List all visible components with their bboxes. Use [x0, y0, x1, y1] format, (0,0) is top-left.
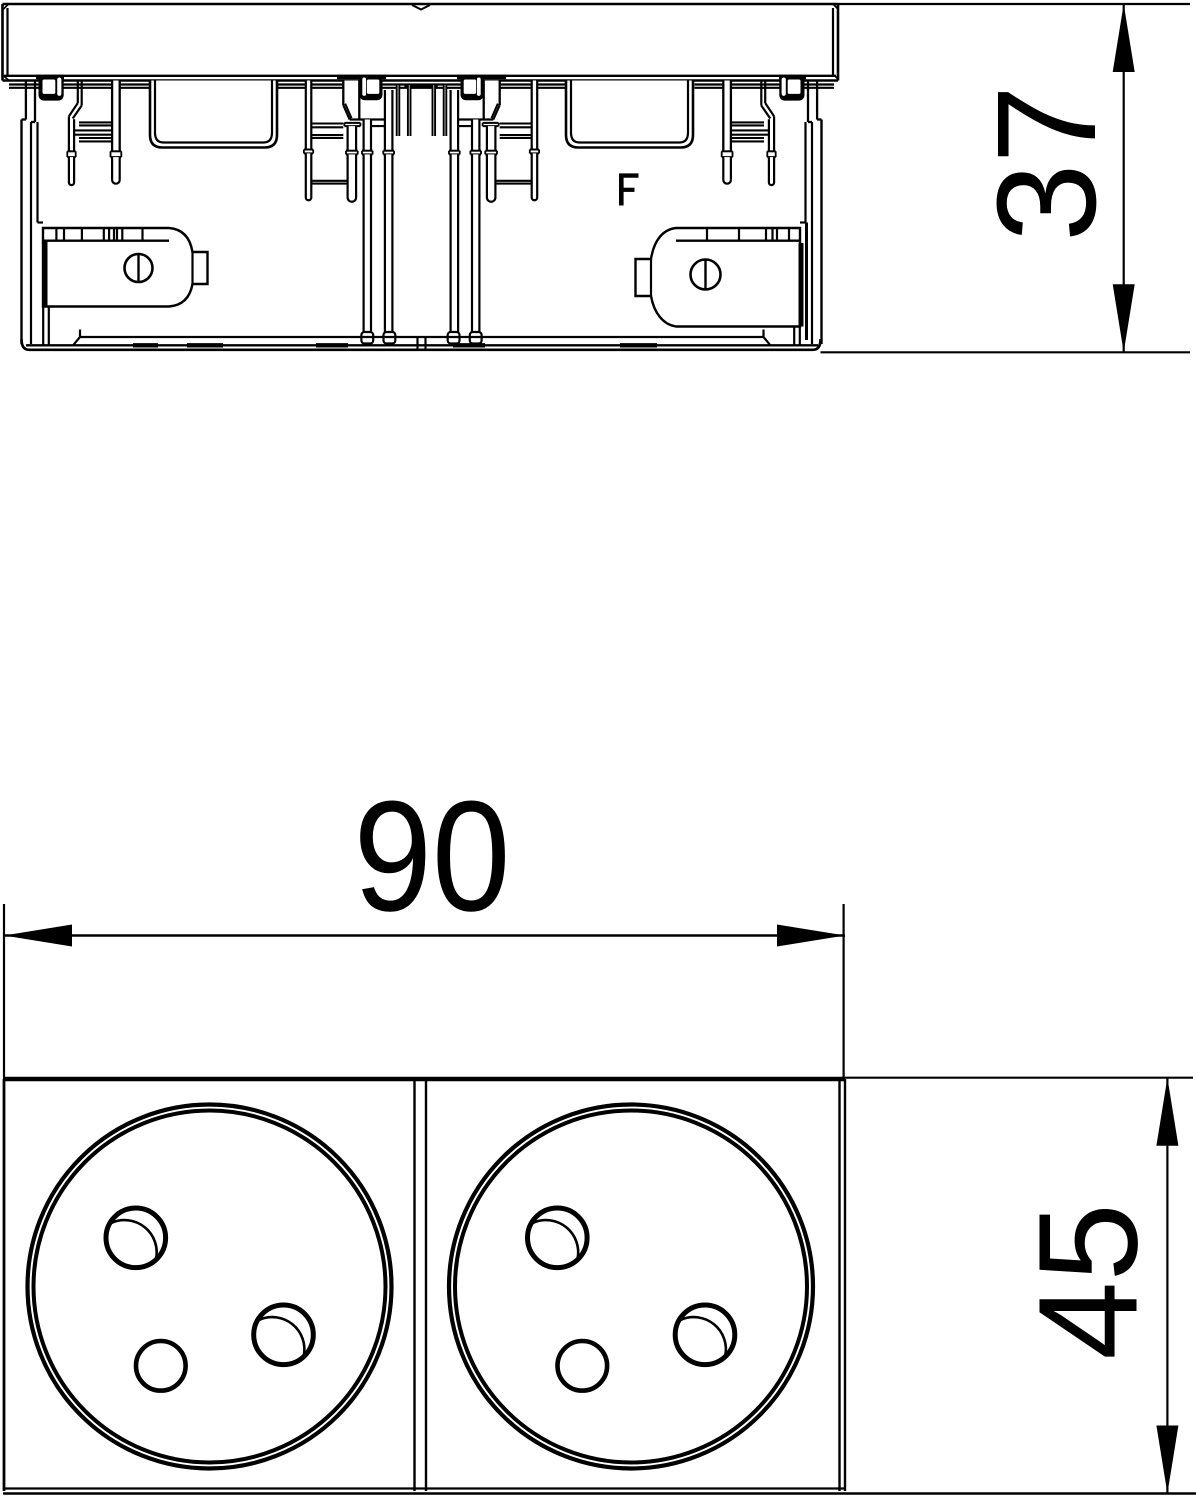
svg-text:37: 37: [967, 85, 1125, 242]
svg-text:45: 45: [1009, 1203, 1167, 1360]
svg-text:90: 90: [354, 768, 511, 944]
